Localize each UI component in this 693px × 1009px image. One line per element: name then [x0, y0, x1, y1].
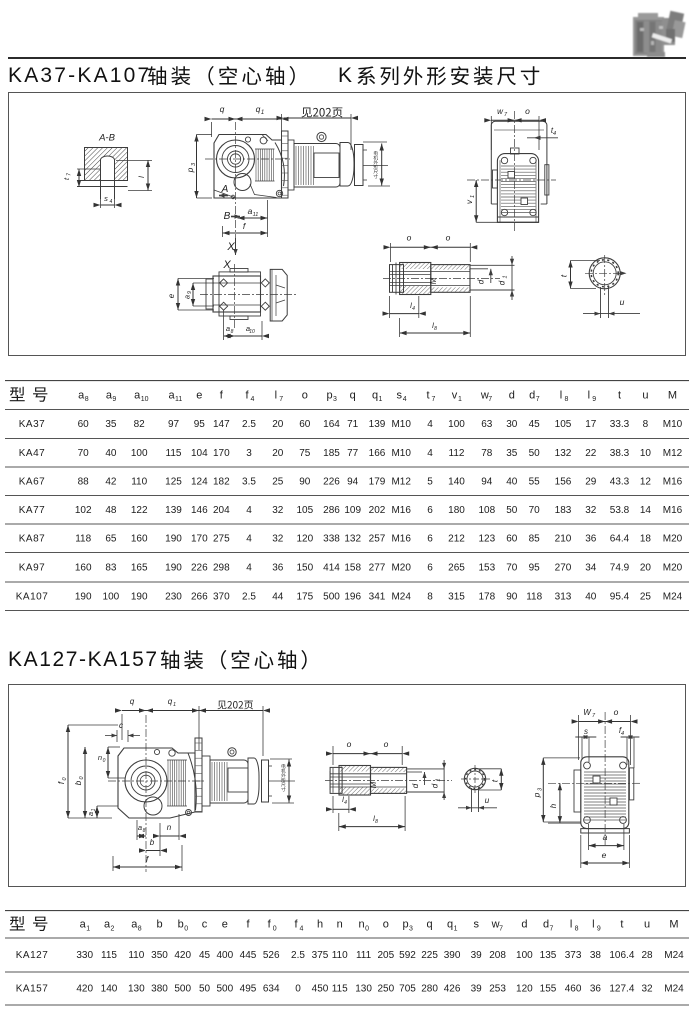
svg-text:390: 390 — [444, 950, 461, 961]
svg-text:179: 179 — [369, 476, 386, 487]
svg-text:s: s — [473, 918, 479, 930]
svg-text:380: 380 — [151, 983, 168, 994]
svg-text:d: d — [477, 279, 486, 284]
svg-text:KA67: KA67 — [19, 476, 45, 487]
svg-text:t: t — [491, 779, 500, 782]
svg-text:v: v — [452, 390, 458, 402]
svg-text:4: 4 — [412, 306, 415, 312]
svg-text:u: u — [485, 796, 490, 805]
svg-text:a: a — [138, 823, 142, 832]
svg-text:7: 7 — [67, 173, 73, 176]
svg-text:48: 48 — [105, 505, 117, 516]
svg-text:a: a — [183, 295, 192, 299]
svg-text:275: 275 — [213, 534, 230, 545]
svg-text:102: 102 — [75, 505, 92, 516]
svg-text:1: 1 — [503, 275, 509, 278]
svg-text:M24: M24 — [391, 592, 411, 603]
svg-text:7: 7 — [499, 925, 503, 932]
svg-text:153: 153 — [478, 563, 495, 574]
svg-text:95: 95 — [529, 563, 541, 574]
svg-text:d: d — [431, 783, 440, 788]
svg-text:M10: M10 — [391, 419, 411, 430]
svg-text:q: q — [447, 918, 453, 930]
svg-text:8: 8 — [565, 396, 569, 403]
svg-text:175: 175 — [296, 592, 313, 603]
svg-text:KA37: KA37 — [19, 419, 45, 430]
svg-text:0: 0 — [103, 758, 106, 764]
svg-text:7: 7 — [592, 713, 596, 719]
svg-text:q: q — [372, 390, 378, 402]
svg-text:183: 183 — [555, 505, 572, 516]
svg-text:M20: M20 — [391, 563, 411, 574]
svg-text:p: p — [186, 167, 195, 173]
svg-text:t: t — [560, 274, 569, 277]
svg-text:l: l — [588, 390, 590, 402]
svg-text:KA77: KA77 — [19, 505, 45, 516]
svg-text:140: 140 — [448, 476, 465, 487]
svg-text:30: 30 — [506, 419, 518, 430]
svg-text:s: s — [104, 194, 108, 203]
svg-text:v: v — [465, 199, 474, 204]
svg-text:97: 97 — [168, 419, 180, 430]
svg-text:8: 8 — [85, 396, 89, 403]
svg-text:226: 226 — [323, 476, 340, 487]
svg-text:43.3: 43.3 — [610, 476, 630, 487]
svg-text:180: 180 — [448, 505, 465, 516]
svg-text:M16: M16 — [391, 505, 411, 516]
svg-text:32: 32 — [641, 983, 653, 994]
svg-text:1: 1 — [86, 925, 90, 932]
svg-text:146: 146 — [191, 505, 208, 516]
svg-text:139: 139 — [369, 419, 386, 430]
svg-text:158: 158 — [344, 563, 361, 574]
svg-text:4: 4 — [110, 199, 113, 205]
svg-text:b: b — [150, 838, 155, 847]
svg-text:n: n — [359, 918, 365, 930]
svg-text:K: K — [338, 64, 352, 87]
svg-text:2.5: 2.5 — [242, 592, 256, 603]
svg-text:o: o — [407, 233, 412, 243]
svg-text:338: 338 — [323, 534, 340, 545]
svg-text:8: 8 — [643, 419, 649, 430]
svg-text:95: 95 — [194, 419, 206, 430]
svg-text:7: 7 — [279, 396, 283, 403]
svg-text:370: 370 — [213, 592, 230, 603]
svg-text:400: 400 — [216, 950, 233, 961]
svg-text:0: 0 — [365, 925, 369, 932]
svg-text:120: 120 — [296, 534, 313, 545]
svg-text:230: 230 — [165, 592, 182, 603]
svg-text:185: 185 — [323, 448, 340, 459]
svg-text:e: e — [196, 390, 202, 402]
svg-text:0: 0 — [79, 776, 85, 780]
svg-text:u: u — [642, 390, 648, 402]
svg-text:M24: M24 — [663, 592, 683, 603]
svg-text:150: 150 — [296, 563, 313, 574]
svg-text:8: 8 — [143, 828, 146, 834]
svg-text:75: 75 — [299, 448, 311, 459]
svg-text:100: 100 — [103, 592, 120, 603]
svg-text:d: d — [509, 390, 515, 402]
svg-text:l: l — [137, 176, 146, 178]
svg-text:95.4: 95.4 — [610, 592, 630, 603]
svg-text:f: f — [146, 854, 150, 864]
svg-text:4: 4 — [427, 448, 433, 459]
svg-text:d: d — [521, 918, 527, 930]
svg-text:l: l — [275, 390, 277, 402]
svg-text:a: a — [86, 812, 95, 816]
svg-text:d: d — [529, 390, 535, 402]
svg-text:204: 204 — [213, 505, 230, 516]
svg-text:4: 4 — [553, 131, 556, 137]
svg-text:4: 4 — [427, 419, 433, 430]
svg-text:105: 105 — [555, 419, 572, 430]
svg-text:4: 4 — [344, 800, 347, 806]
svg-text:f: f — [57, 781, 66, 784]
svg-text:10: 10 — [141, 396, 149, 403]
svg-text:KA97: KA97 — [19, 563, 45, 574]
svg-text:9: 9 — [112, 396, 116, 403]
svg-text:450: 450 — [312, 983, 329, 994]
svg-text:8: 8 — [231, 329, 234, 335]
svg-text:20: 20 — [640, 563, 652, 574]
svg-text:277: 277 — [369, 563, 386, 574]
svg-text:226: 226 — [191, 563, 208, 574]
svg-text:0: 0 — [273, 925, 277, 932]
svg-text:526: 526 — [263, 950, 280, 961]
svg-text:l: l — [592, 918, 594, 930]
svg-text:KA47: KA47 — [19, 448, 45, 459]
svg-text:M: M — [668, 390, 677, 402]
svg-text:341: 341 — [369, 592, 386, 603]
svg-text:8: 8 — [575, 925, 579, 932]
svg-text:500: 500 — [174, 983, 191, 994]
svg-text:4: 4 — [300, 925, 304, 932]
svg-text:50: 50 — [506, 505, 518, 516]
svg-text:10: 10 — [249, 329, 255, 335]
svg-text:109: 109 — [344, 505, 361, 516]
svg-text:KA157: KA157 — [16, 983, 49, 994]
svg-text:11: 11 — [253, 212, 259, 218]
svg-text:l: l — [560, 390, 562, 402]
svg-text:M: M — [369, 781, 378, 788]
svg-text:90: 90 — [299, 476, 311, 487]
svg-text:p: p — [402, 918, 408, 930]
svg-text:250: 250 — [377, 983, 394, 994]
svg-text:110: 110 — [131, 476, 147, 487]
svg-text:M20: M20 — [663, 534, 683, 545]
svg-text:208: 208 — [489, 950, 506, 961]
svg-text:A: A — [221, 184, 229, 195]
svg-text:45: 45 — [199, 950, 211, 961]
svg-text:e: e — [602, 850, 607, 860]
svg-text:h: h — [317, 918, 323, 930]
svg-text:60: 60 — [506, 534, 518, 545]
svg-text:592: 592 — [399, 950, 416, 961]
svg-text:5: 5 — [427, 476, 433, 487]
svg-text:o: o — [302, 390, 308, 402]
svg-text:190: 190 — [75, 592, 92, 603]
svg-text:108: 108 — [478, 505, 495, 516]
svg-text:8: 8 — [427, 592, 433, 603]
svg-text:q: q — [220, 104, 225, 114]
svg-text:286: 286 — [323, 505, 340, 516]
svg-text:78: 78 — [481, 448, 493, 459]
svg-text:44: 44 — [272, 592, 284, 603]
svg-text:2.5: 2.5 — [242, 419, 256, 430]
svg-text:33.3: 33.3 — [610, 419, 630, 430]
svg-text:280: 280 — [421, 983, 438, 994]
svg-text:8: 8 — [434, 326, 437, 332]
svg-text:39: 39 — [471, 950, 483, 961]
svg-text:190: 190 — [131, 592, 148, 603]
svg-text:17: 17 — [585, 419, 597, 430]
svg-text:W: W — [583, 708, 592, 717]
svg-text:330: 330 — [76, 950, 93, 961]
svg-text:85: 85 — [529, 534, 541, 545]
svg-text:130: 130 — [128, 983, 145, 994]
svg-text:83: 83 — [105, 563, 117, 574]
svg-text:o: o — [614, 707, 619, 717]
svg-text:20: 20 — [272, 419, 284, 430]
svg-text:h: h — [549, 803, 558, 808]
svg-text:X: X — [226, 241, 235, 253]
svg-text:1: 1 — [454, 925, 458, 932]
svg-text:7: 7 — [432, 396, 436, 403]
svg-text:a: a — [226, 324, 230, 333]
svg-text:o: o — [347, 739, 352, 749]
svg-text:3.5: 3.5 — [242, 476, 256, 487]
svg-text:q: q — [130, 697, 135, 706]
svg-text:420: 420 — [76, 983, 93, 994]
svg-text:35: 35 — [506, 448, 518, 459]
svg-text:a: a — [603, 832, 608, 842]
svg-text:t: t — [62, 177, 71, 180]
svg-text:375: 375 — [312, 950, 329, 961]
svg-text:4: 4 — [403, 396, 407, 403]
svg-text:155: 155 — [540, 983, 557, 994]
svg-text:9: 9 — [592, 396, 596, 403]
svg-text:253: 253 — [489, 983, 506, 994]
svg-text:112: 112 — [449, 448, 465, 459]
svg-text:28: 28 — [641, 950, 653, 961]
svg-text:55: 55 — [529, 476, 541, 487]
svg-text:M16: M16 — [663, 476, 683, 487]
svg-text:190: 190 — [165, 563, 182, 574]
svg-text:0: 0 — [62, 777, 68, 781]
svg-text:104: 104 — [191, 448, 208, 459]
svg-text:KA127: KA127 — [16, 950, 49, 961]
svg-text:18: 18 — [640, 534, 652, 545]
svg-text:70: 70 — [78, 448, 90, 459]
svg-text:M10: M10 — [663, 419, 683, 430]
svg-text:495: 495 — [240, 983, 257, 994]
svg-text:42: 42 — [105, 476, 117, 487]
svg-text:b: b — [178, 918, 184, 930]
svg-text:f: f — [268, 918, 272, 930]
svg-text:106.4: 106.4 — [609, 950, 634, 961]
svg-text:25: 25 — [640, 592, 652, 603]
svg-text:123: 123 — [478, 534, 495, 545]
svg-text:o: o — [525, 106, 530, 116]
svg-text:e: e — [222, 918, 228, 930]
svg-text:M16: M16 — [663, 505, 683, 516]
svg-text:1: 1 — [458, 396, 462, 403]
svg-text:e: e — [167, 293, 176, 298]
svg-text:0: 0 — [295, 983, 301, 994]
svg-text:36: 36 — [590, 983, 602, 994]
svg-text:6: 6 — [427, 534, 433, 545]
svg-text:45: 45 — [529, 419, 541, 430]
svg-text:c: c — [202, 918, 208, 930]
svg-text:40: 40 — [585, 592, 597, 603]
svg-text:M24: M24 — [664, 983, 684, 994]
svg-text:6: 6 — [427, 505, 433, 516]
svg-text:3: 3 — [538, 787, 544, 791]
svg-text:KA87: KA87 — [19, 534, 45, 545]
svg-text:70: 70 — [506, 563, 518, 574]
svg-text:125: 125 — [165, 476, 182, 487]
svg-text:705: 705 — [399, 983, 416, 994]
svg-text:q: q — [350, 390, 356, 402]
svg-text:140: 140 — [101, 983, 118, 994]
svg-text:225: 225 — [421, 950, 438, 961]
svg-text:350: 350 — [151, 950, 168, 961]
svg-text:p: p — [326, 390, 332, 402]
svg-text:196: 196 — [344, 592, 361, 603]
svg-text:65: 65 — [105, 534, 117, 545]
svg-text:82: 82 — [134, 419, 146, 430]
svg-text:1: 1 — [436, 778, 442, 781]
svg-text:156: 156 — [555, 476, 572, 487]
svg-text:u: u — [644, 918, 650, 930]
svg-text:212: 212 — [448, 534, 465, 545]
svg-text:71: 71 — [347, 419, 359, 430]
svg-text:40: 40 — [105, 448, 117, 459]
svg-text:127.4: 127.4 — [609, 983, 634, 994]
svg-text:d: d — [411, 783, 420, 788]
svg-text:265: 265 — [448, 563, 465, 574]
svg-text:50: 50 — [529, 448, 541, 459]
svg-text:110: 110 — [332, 950, 348, 961]
svg-text:8: 8 — [375, 819, 378, 825]
svg-text:170: 170 — [213, 448, 230, 459]
svg-text:313: 313 — [555, 592, 572, 603]
svg-text:38: 38 — [590, 950, 602, 961]
svg-text:1: 1 — [470, 195, 476, 198]
svg-text:105: 105 — [296, 505, 313, 516]
svg-text:p: p — [533, 792, 542, 798]
svg-text:132: 132 — [555, 448, 572, 459]
svg-text:29: 29 — [585, 476, 597, 487]
svg-text:118: 118 — [75, 534, 91, 545]
svg-text:d: d — [543, 918, 549, 930]
svg-text:c: c — [119, 721, 123, 730]
svg-text:460: 460 — [565, 983, 582, 994]
svg-text:445: 445 — [240, 950, 257, 961]
svg-text:190: 190 — [165, 534, 182, 545]
svg-text:257: 257 — [369, 534, 386, 545]
svg-text:o: o — [383, 918, 389, 930]
svg-text:160: 160 — [75, 563, 92, 574]
svg-text:64.4: 64.4 — [610, 534, 630, 545]
svg-text:M24: M24 — [664, 950, 684, 961]
svg-text:32: 32 — [272, 534, 284, 545]
svg-text:100: 100 — [516, 950, 533, 961]
svg-text:164: 164 — [323, 419, 340, 430]
svg-text:100: 100 — [131, 448, 148, 459]
svg-text:f: f — [294, 918, 298, 930]
svg-text:4: 4 — [251, 396, 255, 403]
svg-text:M12: M12 — [663, 448, 683, 459]
svg-text:KA107: KA107 — [16, 592, 49, 603]
svg-text:f: f — [243, 221, 247, 231]
svg-text:139: 139 — [165, 505, 182, 516]
svg-text:f: f — [220, 390, 224, 402]
svg-text:A-B: A-B — [98, 133, 116, 144]
svg-text:f: f — [246, 918, 250, 930]
svg-text:634: 634 — [263, 983, 280, 994]
svg-text:426: 426 — [444, 983, 461, 994]
svg-text:7: 7 — [504, 112, 508, 118]
svg-text:100: 100 — [448, 419, 465, 430]
svg-text:14: 14 — [640, 505, 652, 516]
svg-text:u: u — [620, 297, 625, 307]
svg-text:39: 39 — [471, 983, 483, 994]
svg-text:166: 166 — [369, 448, 386, 459]
svg-text:s: s — [396, 390, 402, 402]
svg-text:373: 373 — [565, 950, 582, 961]
svg-text:4: 4 — [246, 563, 252, 574]
svg-text:3: 3 — [246, 448, 252, 459]
svg-text:8: 8 — [138, 925, 142, 932]
svg-text:n: n — [337, 918, 343, 930]
svg-text:25: 25 — [272, 476, 284, 487]
svg-text:160: 160 — [131, 534, 148, 545]
svg-text:50: 50 — [199, 983, 211, 994]
svg-text:M12: M12 — [391, 476, 411, 487]
svg-text:M10: M10 — [391, 448, 411, 459]
svg-text:3: 3 — [333, 396, 337, 403]
svg-text:420: 420 — [174, 950, 191, 961]
svg-text:205: 205 — [377, 950, 394, 961]
svg-text:22: 22 — [585, 448, 597, 459]
svg-text:KA37-KA107: KA37-KA107 — [8, 64, 151, 87]
svg-text:94: 94 — [347, 476, 359, 487]
svg-text:n: n — [167, 823, 172, 832]
svg-text:9: 9 — [597, 925, 601, 932]
svg-text:266: 266 — [191, 592, 208, 603]
svg-text:t: t — [618, 390, 621, 402]
svg-text:q: q — [427, 918, 433, 930]
svg-text:B: B — [224, 211, 231, 222]
svg-text:60: 60 — [299, 419, 311, 430]
svg-text:3: 3 — [409, 925, 413, 932]
svg-text:d: d — [498, 280, 507, 285]
svg-text:120: 120 — [516, 983, 533, 994]
svg-text:9: 9 — [187, 291, 193, 294]
svg-text:77: 77 — [347, 448, 359, 459]
svg-text:1: 1 — [379, 396, 383, 403]
svg-text:t: t — [620, 918, 623, 930]
svg-text:f: f — [245, 390, 249, 402]
svg-text:111: 111 — [356, 950, 372, 961]
svg-text:110: 110 — [128, 950, 144, 961]
svg-text:11: 11 — [175, 396, 182, 403]
svg-text:b: b — [156, 918, 162, 930]
svg-text:165: 165 — [131, 563, 148, 574]
svg-text:M: M — [669, 918, 678, 930]
